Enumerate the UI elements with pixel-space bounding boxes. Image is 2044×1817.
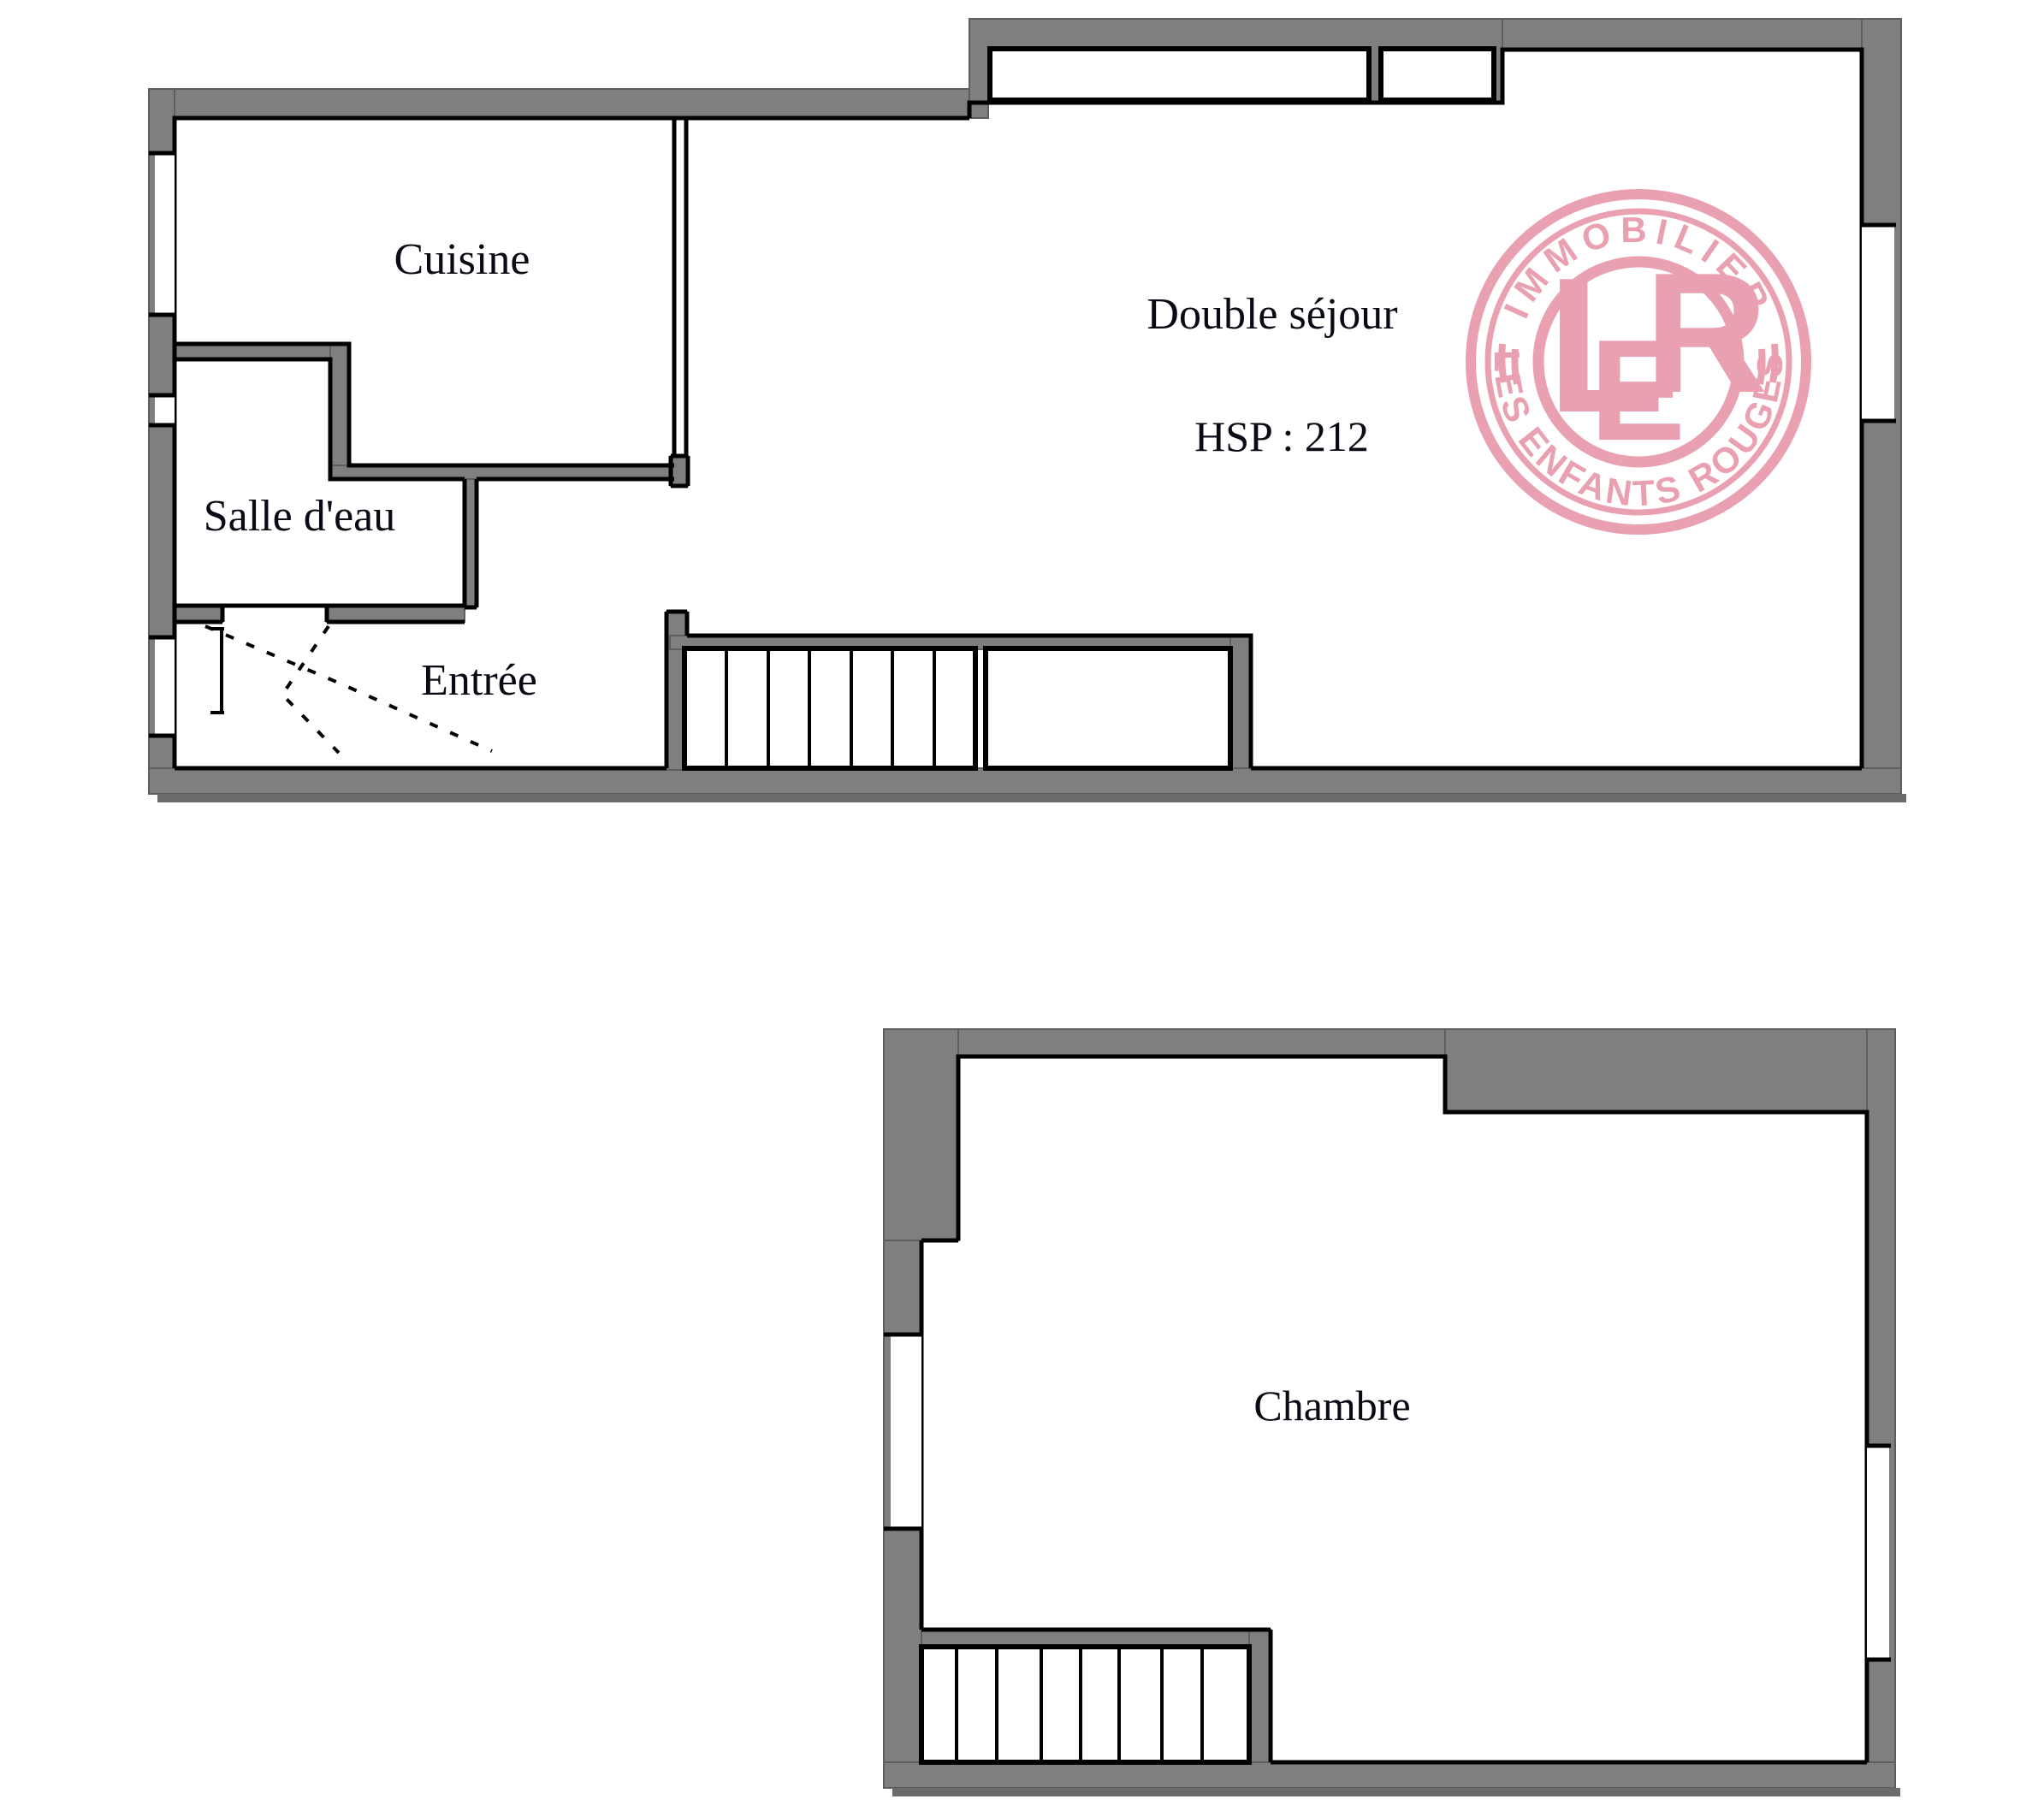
label-chambre: Chambre (1253, 1382, 1410, 1429)
wall-bottom (149, 768, 1901, 794)
window-top-2 (1381, 49, 1494, 100)
label-salle-deau: Salle d'eau (204, 492, 396, 541)
wall-top-right-thin (1502, 19, 1862, 50)
wall-cuisine-salledeau-left (175, 344, 349, 359)
wall-landing-right (1230, 636, 1251, 768)
wall-salledeau-bottom-left (175, 606, 222, 622)
wall-bottom-lower-shadow (892, 1788, 1900, 1796)
wall-stairs-right-lower (1249, 1630, 1271, 1762)
logo-monogram-r: R (1644, 238, 1768, 429)
label-cuisine: Cuisine (394, 235, 530, 284)
floor-plan-lower: Chambre (884, 1029, 1900, 1796)
window-left-a (155, 153, 175, 315)
stairs-box-lower (921, 1647, 1249, 1762)
label-hsp: HSP : 212 (1194, 412, 1369, 460)
window-left-b (155, 395, 175, 425)
lower-stairs (921, 1647, 1249, 1762)
stairs-landing (986, 648, 1230, 768)
upper-stairs (684, 648, 1230, 768)
wall-top-thick (1445, 1029, 1895, 1112)
window-right (1862, 225, 1894, 421)
line-salledeau-top (175, 359, 465, 479)
agency-logo: IMMOBILIER LES ENFANTS ROUGES L E R (1471, 194, 1806, 530)
door-swing-dash-2 (282, 626, 339, 753)
window-lower-right (1867, 1446, 1889, 1660)
wall-top-thin (958, 1029, 1445, 1056)
line-cuisine-bottom (175, 344, 674, 465)
window-lower-left (891, 1335, 921, 1529)
door-leaf (210, 629, 224, 713)
wall-bottom-lower (884, 1762, 1895, 1788)
wall-salledeau-bottom-right (327, 606, 465, 622)
window-left-c (155, 637, 175, 736)
label-entree: Entrée (421, 656, 537, 705)
wall-step-vertical (330, 344, 349, 469)
line-partition-thin (674, 118, 686, 456)
wall-left-thick (884, 1029, 959, 1240)
line-lower-left-inner (921, 1240, 958, 1630)
wall-bottom-shadow (157, 794, 1906, 802)
label-double-sejour: Double séjour (1146, 290, 1397, 339)
wall-top-left (149, 89, 988, 118)
window-top-1 (990, 49, 1369, 100)
floor-plan-drawing: Cuisine Salle d'eau Entrée Double séjour… (0, 0, 2044, 1817)
wall-door-post (671, 456, 688, 486)
